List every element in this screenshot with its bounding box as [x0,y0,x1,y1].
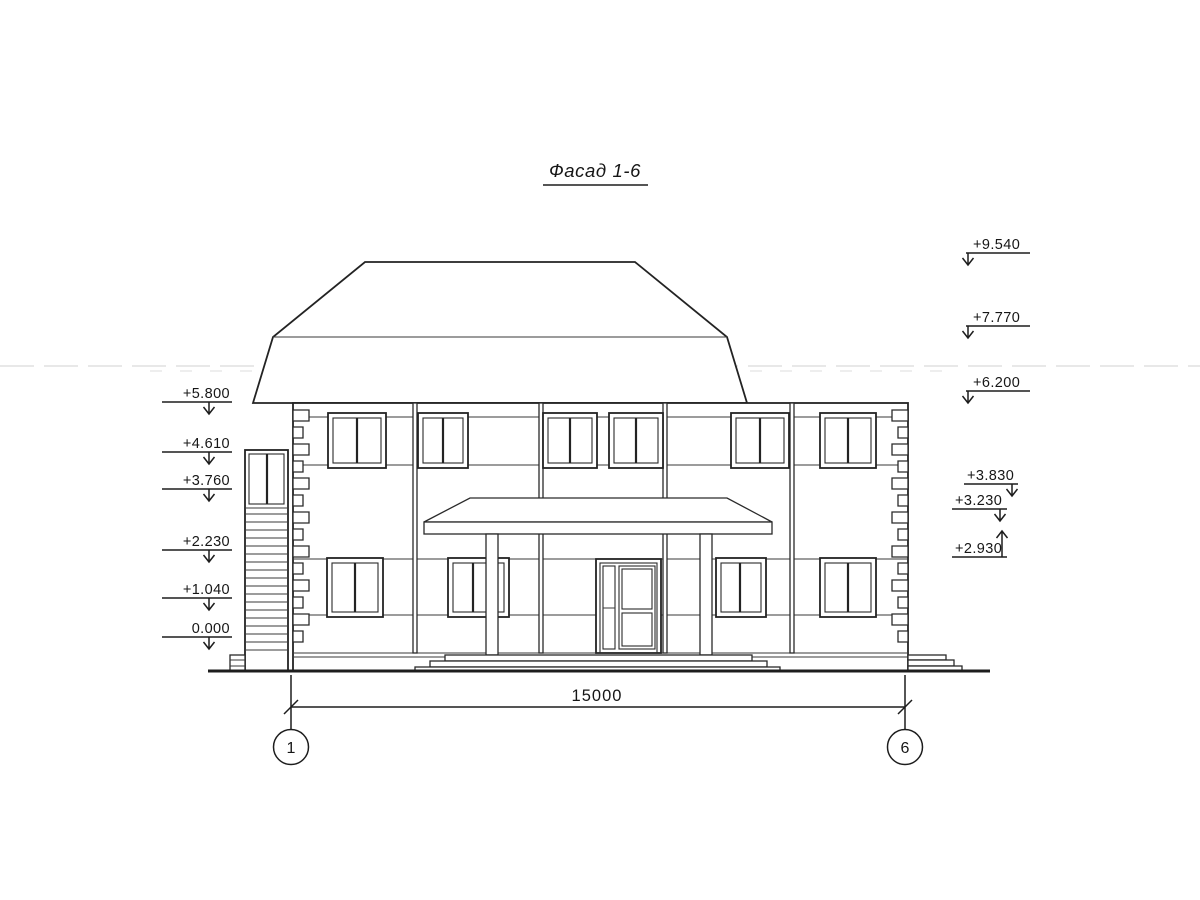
window-lower-2 [448,558,509,617]
elevation-mark-left-1040: +1.040 [162,582,232,610]
elevation-mark-right-7770: +7.770 [963,310,1031,338]
drawing-title: Фасад 1-6 [543,160,648,185]
svg-text:+3.830: +3.830 [967,468,1014,484]
axis-6-label: 6 [901,740,910,757]
elevation-mark-right-3830: +3.830 [964,468,1018,496]
entrance-steps [415,655,780,671]
window-upper-3 [543,413,597,468]
drawing-sheet: Фасад 1-6 [0,0,1200,900]
window-upper-5 [731,413,789,468]
title-text: Фасад 1-6 [549,160,641,181]
svg-text:+5.800: +5.800 [183,386,230,402]
axis-1-label: 1 [287,740,296,757]
elevation-mark-left-2230: +2.230 [162,534,232,562]
dimension-15000: 15000 1 6 [274,675,923,765]
facade-drawing: Фасад 1-6 [0,0,1200,900]
canopy-column-right [700,534,712,655]
side-steps-right [908,655,962,671]
elevation-mark-left-0000: 0.000 [162,621,232,649]
elevation-marks-right-upper: +9.540 +7.770 +6.200 [963,237,1031,403]
svg-text:0.000: 0.000 [192,621,230,637]
stair-annex [230,450,288,671]
svg-text:+3.760: +3.760 [183,473,230,489]
elevation-marks-left: +5.800 +4.610 +3.760 +2.230 +1.040 0.000 [162,386,232,649]
entrance-canopy [424,498,772,534]
svg-text:+3.230: +3.230 [955,493,1002,509]
elevation-mark-left-4610: +4.610 [162,436,232,464]
elevation-mark-right-3230: +3.230 [952,493,1007,521]
canopy-column-left [486,534,498,655]
svg-text:+7.770: +7.770 [973,310,1020,326]
stair-annex-base-steps [230,655,245,671]
roof-outline [253,262,747,403]
elevation-mark-left-3760: +3.760 [162,473,232,501]
elevation-mark-right-2930: +2.930 [952,531,1008,557]
elevation-marks-right-lower: +3.830 +3.230 +2.930 [952,468,1018,557]
svg-text:+6.200: +6.200 [973,375,1020,391]
svg-text:+2.230: +2.230 [183,534,230,550]
window-upper-1 [328,413,386,468]
elevation-mark-right-6200: +6.200 [963,375,1031,403]
elevation-mark-right-9540: +9.540 [963,237,1031,265]
svg-text:+9.540: +9.540 [973,237,1020,253]
window-lower-4 [820,558,876,617]
svg-text:+4.610: +4.610 [183,436,230,452]
window-lower-3 [716,558,766,617]
window-lower-1 [327,558,383,617]
window-upper-2 [418,413,468,468]
window-upper-6 [820,413,876,468]
entrance-door [596,559,661,653]
dimension-value: 15000 [572,687,623,705]
window-upper-4 [609,413,663,468]
elevation-mark-left-5800: +5.800 [162,386,232,414]
svg-text:+2.930: +2.930 [955,541,1002,557]
roof [253,262,747,403]
svg-text:+1.040: +1.040 [183,582,230,598]
